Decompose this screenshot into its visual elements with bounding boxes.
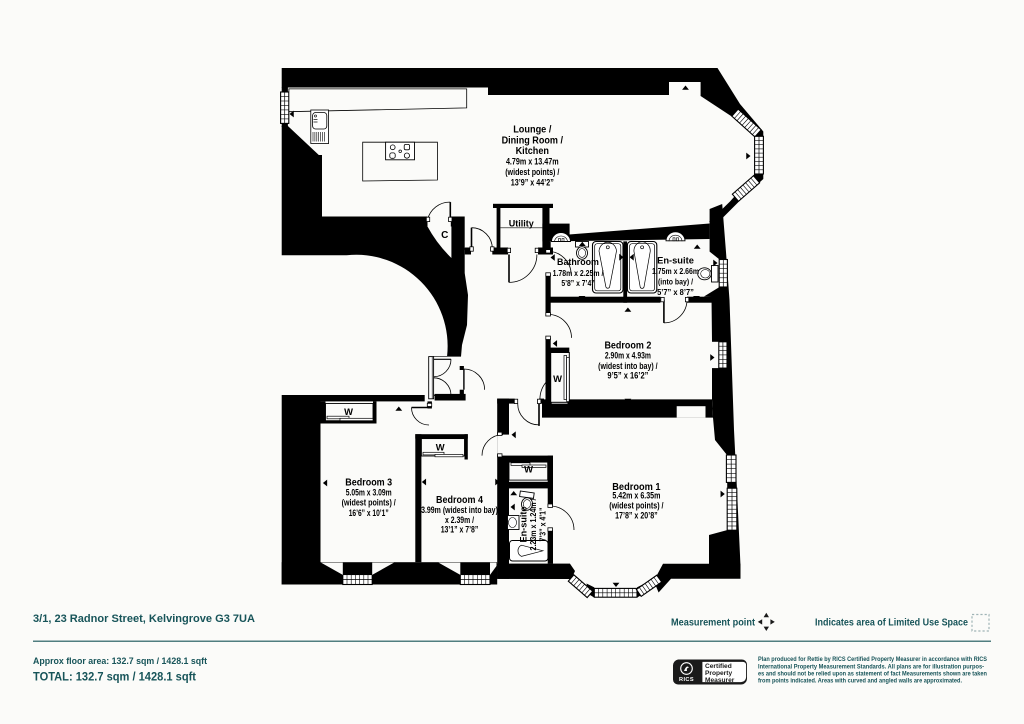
svg-text:Bathroom: Bathroom xyxy=(557,257,599,267)
svg-text:Indicates area of Limited Use: Indicates area of Limited Use Space xyxy=(815,618,969,629)
svg-text:13’9” x 44’2”: 13’9” x 44’2” xyxy=(511,177,554,187)
svg-text:En-suite: En-suite xyxy=(657,255,694,265)
svg-text:Approx floor area: 132.7 sqm /: Approx floor area: 132.7 sqm / 1428.1 sq… xyxy=(33,656,207,666)
svg-text:En-suite: En-suite xyxy=(519,507,529,543)
svg-text:W: W xyxy=(553,373,562,384)
svg-text:2.90m x 4.93m: 2.90m x 4.93m xyxy=(605,351,651,361)
svg-text:1.78m x 2.25m /: 1.78m x 2.25m / xyxy=(553,268,604,278)
svg-text:Kitchen: Kitchen xyxy=(516,146,549,157)
svg-text:(widest points) /: (widest points) / xyxy=(609,500,664,510)
svg-text:Certified: Certified xyxy=(705,663,732,670)
svg-text:Property: Property xyxy=(705,670,732,677)
svg-text:1.75m x 2.66m: 1.75m x 2.66m xyxy=(652,266,699,276)
svg-text:(widest into bay) /: (widest into bay) / xyxy=(598,361,658,371)
svg-text:W: W xyxy=(436,441,445,452)
svg-text:W: W xyxy=(524,464,533,475)
svg-text:5.42m x 6.35m: 5.42m x 6.35m xyxy=(612,491,660,501)
svg-text:W: W xyxy=(344,406,353,417)
svg-text:Plan produced for Rettie by RI: Plan produced for Rettie by RICS Certifi… xyxy=(758,656,987,663)
svg-text:13’1” x 7’8”: 13’1” x 7’8” xyxy=(441,525,479,535)
svg-text:International Property Measur: International Property Measurement Stand… xyxy=(758,663,984,670)
svg-text:9’5” x 16’2”: 9’5” x 16’2” xyxy=(607,371,648,381)
svg-text:(into bay) /: (into bay) / xyxy=(658,277,693,287)
svg-text:Lounge /: Lounge / xyxy=(513,125,551,136)
svg-text:(widest points) /: (widest points) / xyxy=(505,167,560,177)
svg-text:16’6” x 10’1”: 16’6” x 10’1” xyxy=(349,508,389,518)
svg-text:Measurer: Measurer xyxy=(705,677,735,684)
svg-text:from points indicated. Areas w: from points indicated. Areas with curved… xyxy=(758,678,962,685)
svg-text:3.99m (widest into bay): 3.99m (widest into bay) xyxy=(421,505,498,515)
svg-text:2.23m x 1.24m /: 2.23m x 1.24m / xyxy=(528,498,538,550)
svg-text:x 2.39m /: x 2.39m / xyxy=(445,515,474,525)
svg-text:TOTAL: 132.7 sqm / 1428.1 sqft: TOTAL: 132.7 sqm / 1428.1 sqft xyxy=(33,670,196,684)
svg-text:5.05m x 3.09m: 5.05m x 3.09m xyxy=(346,488,392,498)
svg-text:7’3” x 4’1”: 7’3” x 4’1” xyxy=(538,508,548,542)
svg-text:17’8” x 20’8”: 17’8” x 20’8” xyxy=(615,511,658,521)
svg-text:4.79m x 13.47m: 4.79m x 13.47m xyxy=(506,157,559,167)
svg-text:Dining Room /: Dining Room / xyxy=(502,135,564,146)
svg-text:Utility: Utility xyxy=(509,219,535,230)
svg-text:C: C xyxy=(441,230,448,241)
svg-text:5’7” x 8’7”: 5’7” x 8’7” xyxy=(657,287,694,297)
svg-text:Measurement point: Measurement point xyxy=(671,618,756,629)
svg-text:RICS: RICS xyxy=(679,677,694,683)
svg-text:es and should not be relied up: es and should not be relied upon as stat… xyxy=(758,670,987,677)
svg-text:(widest points) /: (widest points) / xyxy=(342,498,397,508)
svg-text:5’8” x 7’4”: 5’8” x 7’4” xyxy=(561,278,594,288)
svg-text:3/1, 23 Radnor Street, Kelving: 3/1, 23 Radnor Street, Kelvingrove G3 7U… xyxy=(33,613,255,625)
